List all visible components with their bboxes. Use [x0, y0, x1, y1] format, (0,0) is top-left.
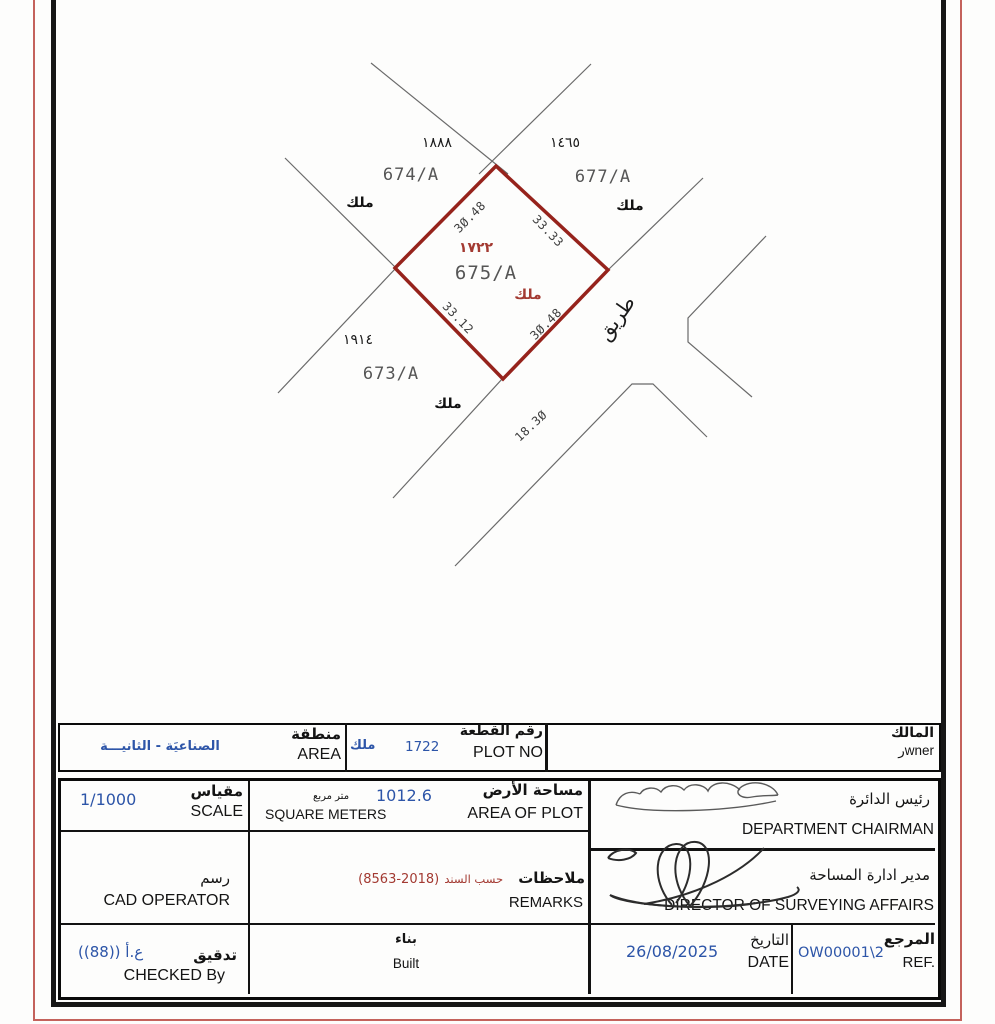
plot-map-canvas: [0, 0, 995, 680]
director-label-ar: مدير ادارة المساحة: [780, 866, 930, 884]
area-label-ar: منطقة: [288, 725, 341, 743]
ref-label-en: REF.: [880, 954, 935, 971]
parcel-677-plot-number: 677/A: [575, 167, 631, 187]
ref-label-ar: المرجع: [870, 930, 935, 948]
scale-label-ar: مقياس: [140, 782, 243, 800]
road-and-boundary-lines: [278, 63, 766, 566]
date-label-ar: التاريخ: [733, 931, 789, 949]
area-label-en: AREA: [288, 746, 341, 764]
parcel-677-tenure-label: ملك: [616, 198, 643, 214]
parcel-674-tenure-label: ملك: [346, 195, 373, 211]
chairman-label-en: DEPARTMENT CHAIRMAN: [712, 821, 934, 839]
survey-plan-page: ١٨٨٨ 674/A ملك ١٤٦٥ 677/A ملك ١٩١٤ 673/A…: [0, 0, 995, 1024]
remarks-note-ar: حسب السند: [444, 872, 503, 886]
parcel-673-survey-number: ١٩١٤: [343, 332, 373, 348]
checked-by-label-ar: تدقيق: [185, 946, 237, 964]
plot-number-value: 1722: [405, 739, 439, 755]
remarks-note-ref: (2018-8563): [358, 872, 439, 887]
owner-strip-divider-1: [345, 723, 347, 772]
table-row-divider-2: [61, 923, 935, 925]
parcel-674-plot-number: 674/A: [383, 165, 439, 185]
cad-operator-label-en: CAD OPERATOR: [95, 892, 230, 910]
built-label-en: Built: [380, 956, 432, 971]
plot-area-value: 1012.6: [376, 786, 432, 805]
table-divider-col1: [248, 781, 250, 994]
checked-by-label-en: CHECKED By: [115, 967, 225, 985]
parcel-673-plot-number: 673/A: [363, 364, 419, 384]
owner-strip-divider-2: [545, 723, 548, 772]
cad-operator-label-ar: رسم: [130, 869, 230, 887]
area-value: الصناعيَة - الثانيـــة: [80, 739, 240, 754]
plot-number-label-en: PLOT NO: [455, 744, 543, 762]
built-label-ar: بناء: [380, 932, 432, 947]
plot-tenure-value: ملك: [350, 738, 375, 753]
date-label-en: DATE: [733, 954, 789, 972]
remarks-line: ملاحظات حسب السند (2018-8563): [338, 868, 585, 887]
table-row-divider-right-1: [591, 848, 935, 851]
owner-label-en: رwner: [846, 743, 934, 759]
scale-value: 1/1000: [80, 790, 136, 809]
table-row-divider-left-1: [61, 830, 588, 832]
table-divider-date-ref: [791, 925, 793, 994]
checked-by-value: ع.أ ((88)): [78, 943, 143, 961]
plot-area-label-ar: مساحة الأرض: [465, 781, 583, 799]
date-value: 26/08/2025: [626, 942, 718, 961]
scale-label-en: SCALE: [140, 803, 243, 821]
remarks-label-en: REMARKS: [455, 894, 583, 911]
parcel-674-survey-number: ١٨٨٨: [422, 135, 452, 151]
remarks-label-ar: ملاحظات: [518, 869, 585, 887]
plot-number-label-ar: رقم القطعة: [455, 723, 543, 739]
plot-area-unit-ar: متر مربع: [313, 791, 349, 802]
parcel-677-survey-number: ١٤٦٥: [550, 135, 580, 151]
owner-label-ar: المالك: [846, 725, 934, 741]
parcel-673-tenure-label: ملك: [434, 396, 461, 412]
plot-area-label-en: AREA OF PLOT: [465, 805, 583, 823]
plot-area-unit-en: SQUARE METERS: [265, 806, 386, 822]
table-divider-col2: [588, 781, 591, 994]
director-label-en: DIRECTOR OF SURVEYING AFFAIRS: [628, 897, 934, 915]
parcel-675-plot-number: 675/A: [455, 262, 517, 284]
parcel-675-survey-number: ١٧٢٢: [459, 240, 493, 256]
chairman-label-ar: رئيس الدائرة: [790, 790, 930, 808]
parcel-675-tenure-label: ملك: [514, 287, 541, 303]
